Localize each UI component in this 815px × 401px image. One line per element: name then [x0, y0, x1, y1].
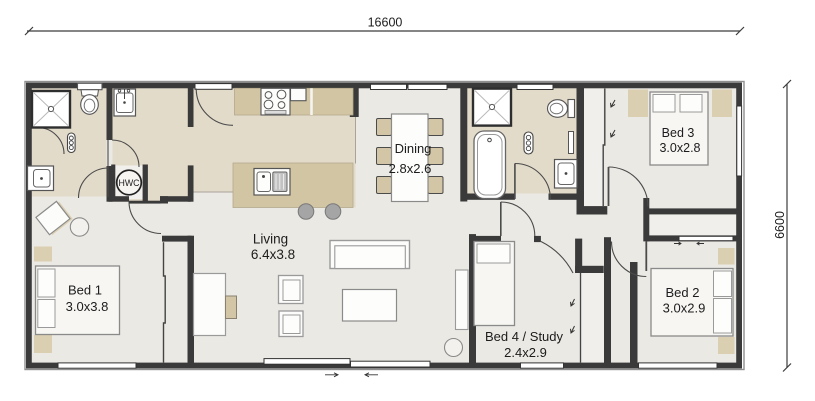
svg-text:16600: 16600 [368, 16, 403, 30]
svg-text:3.0x2.9: 3.0x2.9 [663, 301, 706, 316]
svg-text:6600: 6600 [773, 211, 787, 239]
svg-text:Dining: Dining [395, 141, 432, 156]
svg-text:Bed 3: Bed 3 [662, 126, 695, 140]
svg-text:2.8x2.6: 2.8x2.6 [389, 161, 432, 176]
svg-text:Bed 2: Bed 2 [666, 285, 700, 300]
svg-text:3.0x3.8: 3.0x3.8 [66, 299, 109, 314]
svg-text:Living: Living [253, 232, 288, 247]
svg-text:Bed 1: Bed 1 [68, 283, 102, 298]
svg-text:3.0x2.8: 3.0x2.8 [659, 141, 700, 155]
svg-text:6.4x3.8: 6.4x3.8 [251, 247, 295, 262]
svg-text:2.4x2.9: 2.4x2.9 [504, 345, 547, 360]
svg-text:HWC: HWC [118, 178, 140, 188]
svg-text:Bed 4 / Study: Bed 4 / Study [485, 329, 564, 344]
